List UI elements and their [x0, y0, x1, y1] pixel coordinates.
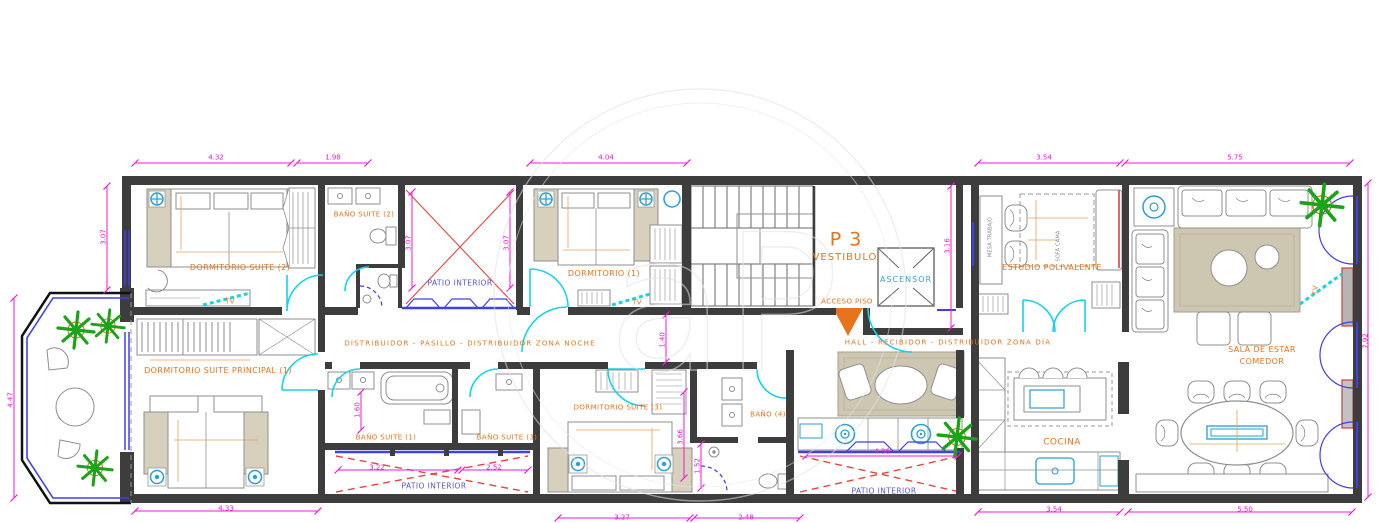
watermark-text: aP — [608, 194, 839, 415]
dim-bottom-4: 3.54 — [1046, 507, 1062, 514]
dim-patio-bl-1: 3.22 — [369, 465, 385, 472]
room-label-bano-4: BAÑO (4) — [750, 412, 786, 419]
terrace-table — [56, 388, 94, 426]
room-label-dormitorio-suite-2: DORMITORIO SUITE (2) — [190, 264, 290, 272]
sideboard — [1136, 474, 1328, 492]
room-label-dormitorio-suite-3: DORMITORIO SUITE (3) — [574, 405, 663, 412]
dim-patio-bl-2: 2.52 — [486, 465, 502, 472]
corridor-label-noche: DISTRIBUIDOR - PASILLO - DISTRIBUIDOR ZO… — [344, 341, 596, 348]
dim-inner-2: 3.66 — [678, 429, 685, 445]
room-label-cocina: COCINA — [1043, 439, 1081, 448]
dim-left-1: 3.07 — [101, 229, 108, 245]
room-label-bano-suite-2: BAÑO SUITE (2) — [334, 212, 395, 219]
corridor-label-dia: HALL - RECIBIDOR - DISTRIBUIDOR ZONA DÍA — [845, 340, 1052, 347]
label-sofa-cama: SOFÁ CAMA — [1057, 231, 1062, 262]
label-acceso-piso: ACCESO PISO — [821, 299, 873, 306]
dim-top-1: 4.32 — [208, 155, 224, 162]
room-label-patio-bl: PATIO INTERIOR — [402, 482, 467, 490]
dim-corridor: 1.40 — [660, 332, 667, 348]
room-label-estudio: ESTUDIO POLIVALENTE — [1002, 264, 1102, 272]
dim-top-2: 1.98 — [325, 155, 341, 162]
tv-label-suite2: TV — [225, 299, 235, 306]
dim-top-4: 3.54 — [1036, 155, 1052, 162]
pouf — [1238, 312, 1271, 345]
coffee-table — [1211, 250, 1247, 286]
dim-inner-3: 1.52 — [695, 458, 702, 474]
dim-bottom-1: 4.33 — [218, 506, 234, 513]
hall-table — [875, 366, 927, 404]
dim-top-5: 5.75 — [1227, 155, 1243, 162]
dim-bottom-5: 5.50 — [1237, 507, 1253, 514]
room-label-bano-1: BAÑO SUITE (1) — [356, 435, 417, 442]
pouf — [1197, 312, 1230, 345]
room-label-sala-1: SALA DE ESTAR — [1228, 346, 1296, 354]
room-label-vestibulo: VESTIBULO — [813, 253, 878, 263]
dim-right-1: 3.16 — [945, 238, 952, 254]
dim-right-2: 7.92 — [1363, 333, 1370, 349]
dim-top-3: 4.04 — [598, 155, 614, 162]
side-table — [1255, 245, 1279, 269]
dim-bottom-2: 3.27 — [614, 515, 630, 522]
dim-patio-br-1: 4.36 — [874, 449, 890, 456]
tv-label-dorm1: TV — [632, 300, 642, 307]
room-label-sala-2: COMEDOR — [1240, 358, 1285, 366]
floor-plan-canvas: aP — [0, 0, 1386, 523]
room-label-patio-br: PATIO INTERIOR — [852, 487, 917, 495]
room-label-patio-top: PATIO INTERIOR — [428, 279, 493, 287]
label-mesa-trabajo: MESA TRABAJO — [989, 217, 994, 257]
room-label-bano-3: BAÑO SUITE (3) — [477, 435, 538, 442]
wardrobe-principal — [137, 319, 315, 360]
dim-bottom-3: 2.48 — [738, 515, 754, 522]
dim-inner-1: 1.60 — [355, 402, 362, 418]
room-label-principal: DORMITORIO SUITE PRINCIPAL (1) — [144, 367, 292, 375]
dim-patio-top-l: 3.07 — [406, 235, 413, 251]
dim-patio-top-r: 3.07 — [504, 235, 511, 251]
room-label-dormitorio-1: DORMITORIO (1) — [568, 270, 640, 278]
dim-left-2: 4.47 — [8, 392, 15, 408]
plan-title-p3: P 3 — [830, 231, 863, 250]
floor-plan-page: aP DORMITORIO SUITE (2) BAÑO SUITE (2) P… — [0, 0, 1386, 523]
room-label-ascensor: ASCENSOR — [880, 276, 932, 284]
tv-label-sala: TV — [1313, 285, 1320, 295]
